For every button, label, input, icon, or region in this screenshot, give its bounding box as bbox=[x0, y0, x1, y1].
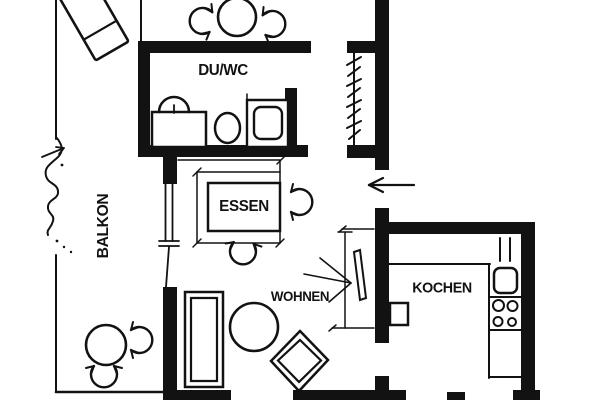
shower-icon bbox=[247, 94, 288, 147]
dining-chair-icon bbox=[224, 241, 262, 265]
floorplan: BALKON DU/WC ESSEN WOHNEN KOCHEN bbox=[0, 0, 600, 400]
terrace-chair-icon bbox=[262, 4, 288, 43]
armchair-icon bbox=[271, 331, 328, 391]
stove-icon bbox=[489, 297, 521, 330]
sofa-icon bbox=[185, 292, 223, 387]
room-label-essen: ESSEN bbox=[219, 198, 269, 216]
room-label-balkon: BALKON bbox=[95, 194, 113, 259]
terrace-chair-icon bbox=[187, 1, 213, 40]
dining-chair-icon bbox=[291, 184, 312, 220]
balcony-table-icon bbox=[86, 325, 126, 365]
vanity-counter-icon bbox=[152, 112, 206, 147]
room-label-kochen: KOCHEN bbox=[412, 280, 471, 297]
sink-icon bbox=[494, 268, 517, 293]
room-label-wohnen: WOHNEN bbox=[271, 288, 329, 304]
balcony-chair-icon bbox=[131, 322, 152, 358]
floorplan-linework bbox=[0, 0, 600, 400]
kitchen-cabinet-icon bbox=[390, 303, 408, 325]
balcony-break-arrow bbox=[42, 147, 64, 157]
hall-dimension-line bbox=[339, 226, 374, 232]
terrace-table-icon bbox=[218, 0, 256, 36]
living-table-icon bbox=[230, 303, 278, 351]
balcony-chair-icon bbox=[86, 366, 122, 387]
balcony-door-icon bbox=[159, 183, 179, 287]
door-leaf-icon bbox=[354, 250, 366, 300]
toilet-icon bbox=[215, 113, 240, 143]
room-label-duwc: DU/WC bbox=[198, 62, 248, 80]
living-door-dimension bbox=[329, 232, 374, 331]
lounger-icon bbox=[53, 0, 129, 61]
balcony-break-dots bbox=[56, 164, 73, 254]
entrance-arrow-icon bbox=[369, 178, 414, 192]
